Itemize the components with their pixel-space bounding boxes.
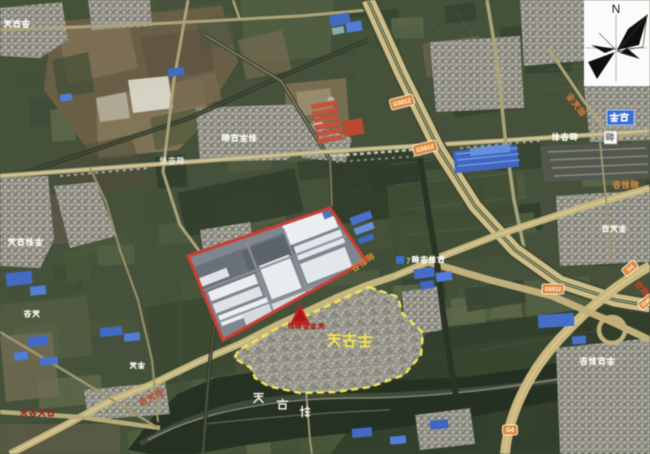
svg-text:7: 7 bbox=[406, 257, 411, 266]
svg-text:N: N bbox=[612, 2, 621, 16]
svg-text:G4: G4 bbox=[506, 428, 515, 434]
svg-text:G5512: G5512 bbox=[545, 287, 562, 293]
